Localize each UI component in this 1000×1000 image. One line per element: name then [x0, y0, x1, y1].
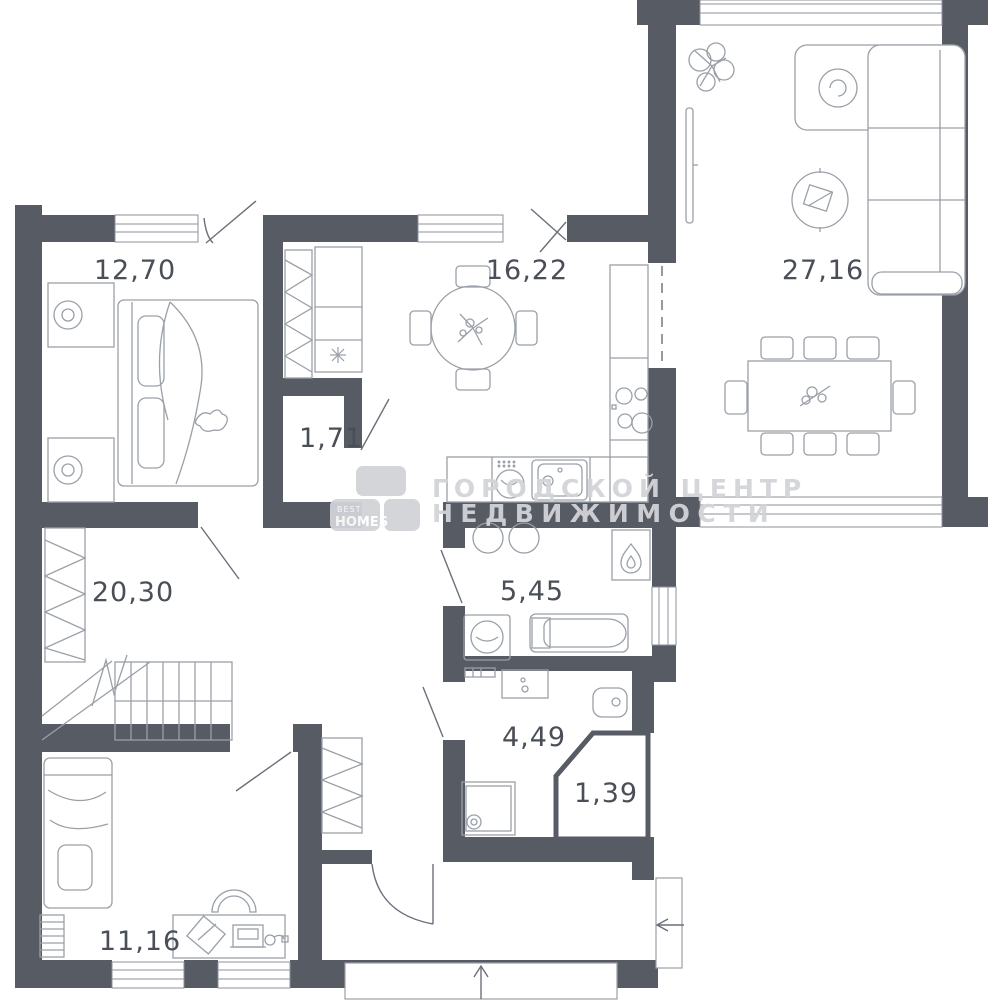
bedroom-ext-door-arc: [204, 218, 213, 243]
chair-bottom: [456, 369, 490, 390]
study-window-left: [112, 962, 184, 988]
wc-fixtures: [462, 668, 648, 839]
dining-chair: [761, 337, 793, 359]
bedroom-wardrobe: [285, 250, 312, 378]
corridor-wardrobe: [322, 738, 362, 833]
bedroom-furniture: [48, 283, 258, 502]
room-label-bathroom: 5,45: [500, 576, 564, 607]
dining-chair: [761, 433, 793, 455]
bedroom-ext-door-leaf: [206, 201, 256, 243]
room-label-kitchen: 16,22: [486, 255, 568, 286]
kitchen-window: [418, 215, 503, 242]
best-homes-logo: BEST HOMES: [330, 466, 420, 531]
boiler: [612, 530, 650, 580]
flame-icon: [621, 544, 641, 573]
coffee-table: [792, 168, 848, 232]
tv-icon: [686, 108, 698, 223]
closet-door-leaf: [361, 399, 389, 450]
sofa-armrest: [872, 272, 962, 294]
floor-plan-drawing: 12,70 16,22 27,16 1,71 20,30 5,45 4,49 1…: [0, 0, 1000, 1000]
logo-best: BEST: [337, 505, 362, 514]
entrance-door-arc: [372, 864, 433, 924]
bathtub: [530, 614, 628, 652]
room-label-shower: 1,39: [574, 778, 638, 809]
dining-chair: [893, 381, 915, 414]
room-label-study: 11,16: [99, 926, 181, 957]
watermark: BEST HOMES ГОРОДСКОЙ ЦЕНТР НЕДВИЖИМОСТИ: [330, 466, 807, 531]
room-label-hallway: 20,30: [92, 577, 174, 608]
living-top-window: [700, 0, 942, 25]
study-door-leaf: [236, 752, 291, 791]
single-bed: [44, 758, 112, 908]
radiator: [40, 915, 64, 957]
plant-icon: [689, 43, 734, 91]
desk-chair: [212, 890, 256, 912]
stove-burners: [612, 388, 652, 433]
dining-chair: [725, 381, 747, 414]
bathroom-window: [652, 587, 676, 645]
nightstand-bottom: [48, 438, 114, 502]
logo-homes: HOMES: [335, 515, 388, 530]
watermark-line2: НЕДВИЖИМОСТИ: [432, 499, 776, 528]
vanity-sink: [502, 670, 548, 698]
shower-tray: [462, 782, 515, 835]
toilet: [593, 688, 627, 717]
room-label-bedroom: 12,70: [94, 255, 176, 286]
dining-chair: [804, 337, 836, 359]
study-window-right: [218, 962, 290, 988]
kitchen-counter-right: [610, 265, 652, 502]
fridge-symbol: [330, 347, 346, 363]
kitchen-ext-door-leaf: [531, 209, 566, 240]
room-label-living: 27,16: [782, 255, 864, 286]
dining-chair: [847, 433, 879, 455]
living-room-furniture: [686, 43, 965, 455]
bedroom-window: [115, 215, 198, 242]
nightstand-top: [48, 283, 114, 347]
hallway-wardrobe: [45, 528, 85, 662]
dining-chair: [804, 433, 836, 455]
bathroom-door-leaf: [441, 550, 462, 603]
kitchen-cabinet-column: [315, 247, 362, 372]
desk: [173, 890, 288, 958]
bedroom-door-leaf: [201, 527, 239, 579]
washing-machine: [464, 615, 510, 660]
dining-chair: [847, 337, 879, 359]
sofa-pillow: [819, 69, 857, 107]
kitchen-furniture: [410, 265, 652, 502]
double-bed: [118, 300, 258, 486]
floor-plan: 12,70 16,22 27,16 1,71 20,30 5,45 4,49 1…: [0, 0, 1000, 1000]
chair-left: [410, 311, 431, 345]
room-label-closet: 1,71: [299, 423, 363, 454]
wc-door-leaf: [423, 687, 443, 737]
dining-table: [725, 337, 915, 455]
room-label-wc: 4,49: [502, 722, 566, 753]
chair-right: [516, 311, 537, 345]
